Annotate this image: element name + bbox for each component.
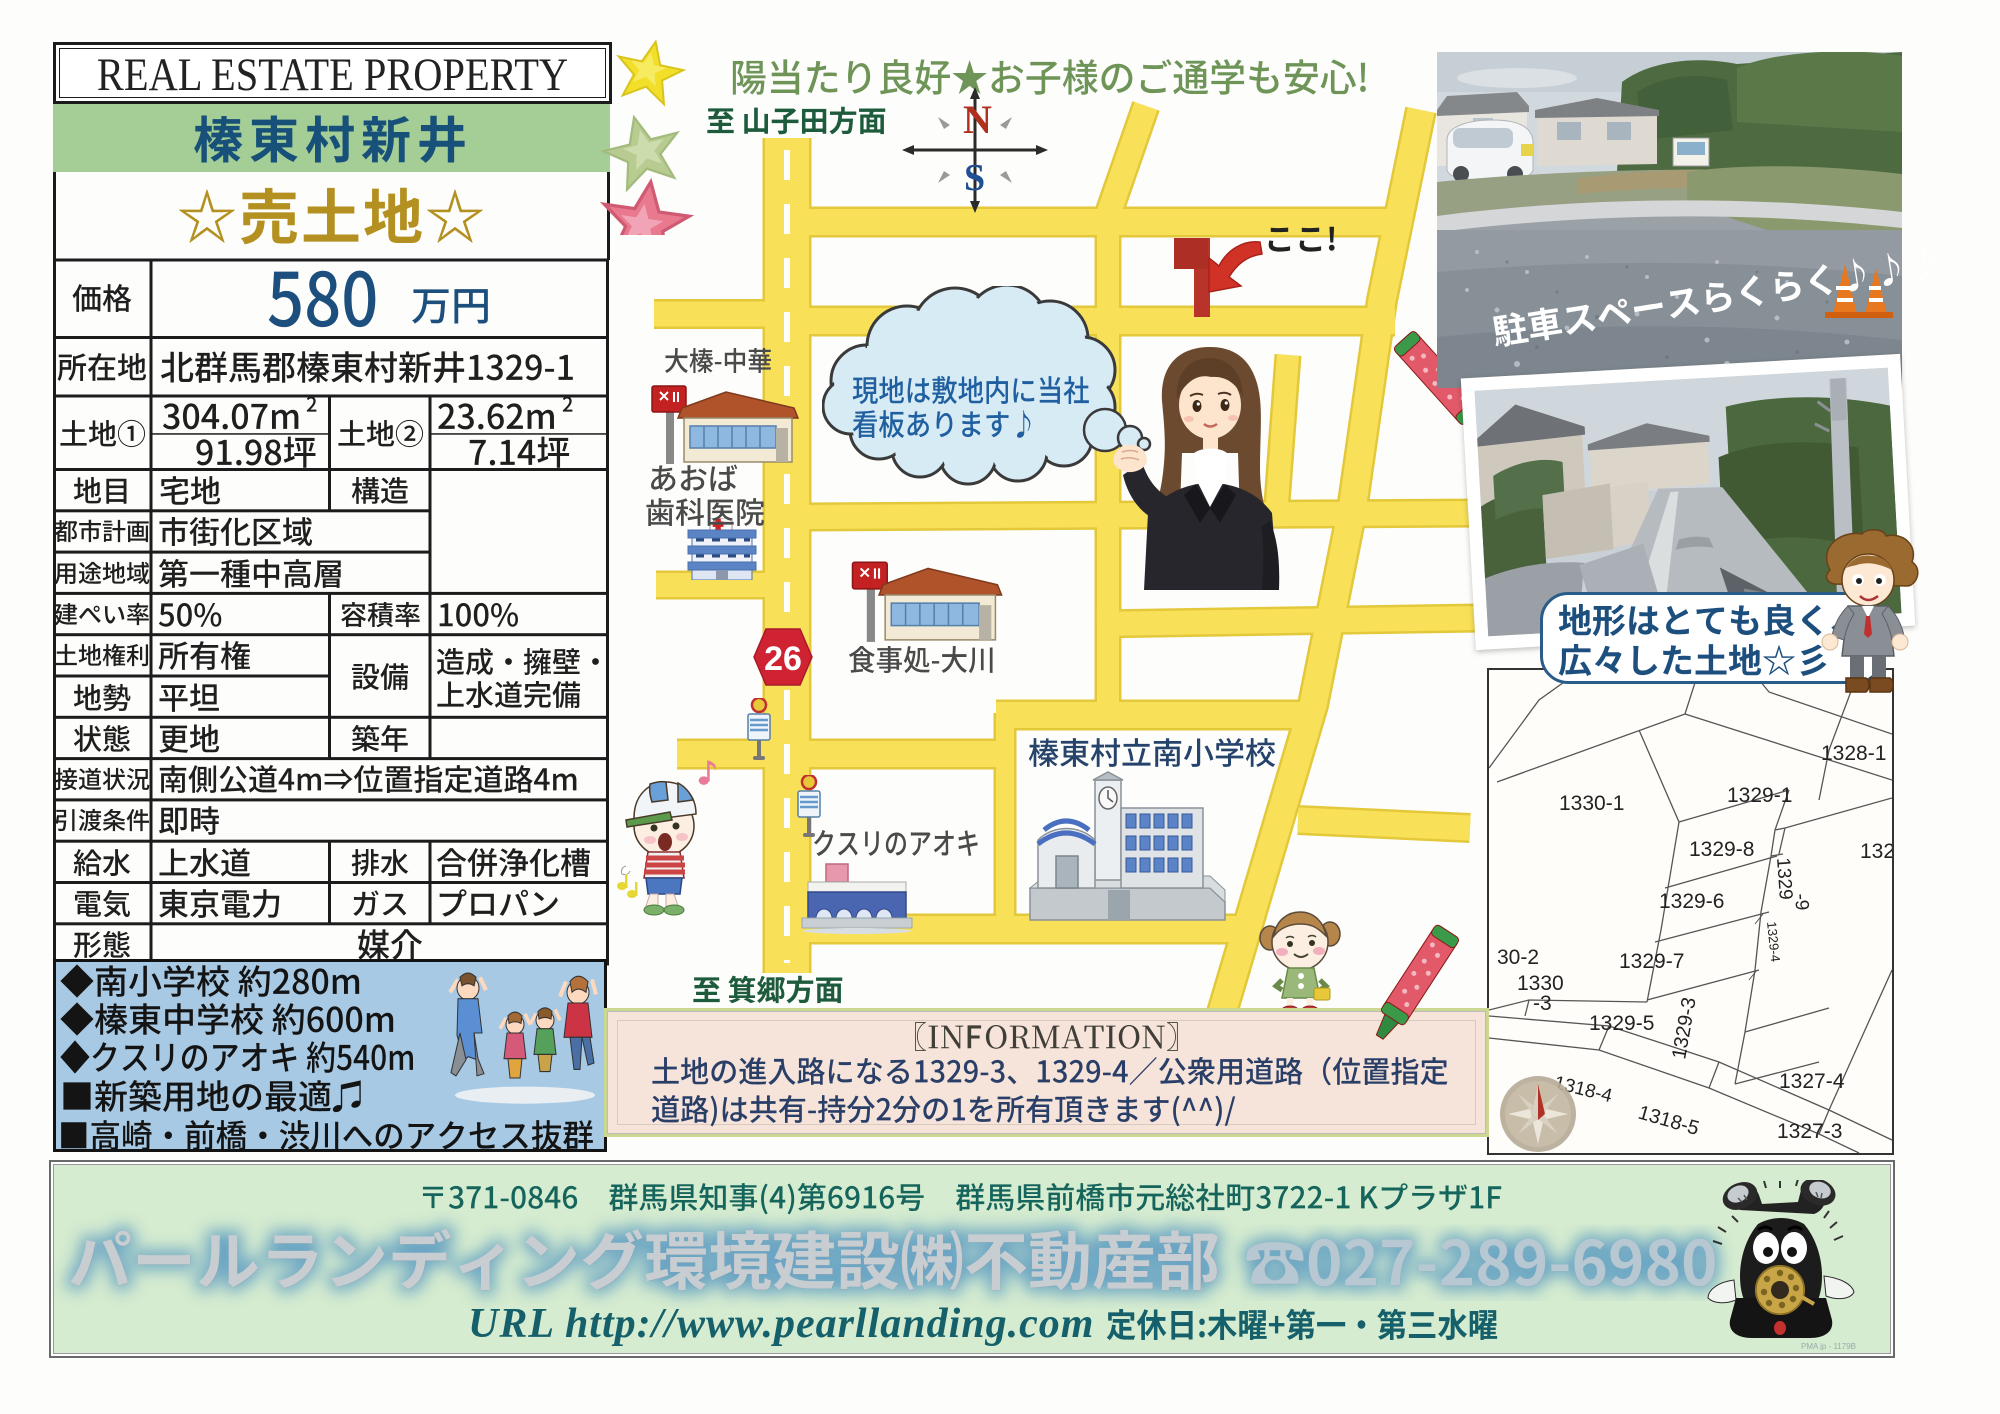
- svg-text:1330-1: 1330-1: [1559, 792, 1624, 815]
- svg-text:1329-4: 1329-4: [1764, 921, 1783, 963]
- svg-text:132: 132: [1860, 840, 1892, 863]
- svg-text:30-2: 30-2: [1497, 946, 1539, 969]
- svg-text:S: S: [964, 157, 985, 199]
- svg-text:1329-5: 1329-5: [1589, 1012, 1654, 1035]
- svg-text:1329-1: 1329-1: [1727, 784, 1792, 807]
- svg-text:1328-1: 1328-1: [1821, 742, 1886, 765]
- svg-text:-9: -9: [1790, 893, 1812, 911]
- svg-text:1329-8: 1329-8: [1689, 838, 1754, 861]
- svg-text:1318-5: 1318-5: [1636, 1102, 1702, 1140]
- svg-text:1329-6: 1329-6: [1659, 890, 1724, 913]
- svg-text:PMA jp - 1179B464: PMA jp - 1179B464: [1801, 1342, 1856, 1350]
- svg-text:1327-4: 1327-4: [1779, 1070, 1845, 1093]
- svg-text:N: N: [963, 97, 992, 142]
- svg-text:1329-7: 1329-7: [1619, 950, 1684, 973]
- svg-text:-3: -3: [1533, 992, 1552, 1015]
- svg-text:26: 26: [764, 640, 802, 678]
- svg-text:1329-3: 1329-3: [1668, 996, 1700, 1061]
- svg-text:1327-3: 1327-3: [1777, 1120, 1842, 1143]
